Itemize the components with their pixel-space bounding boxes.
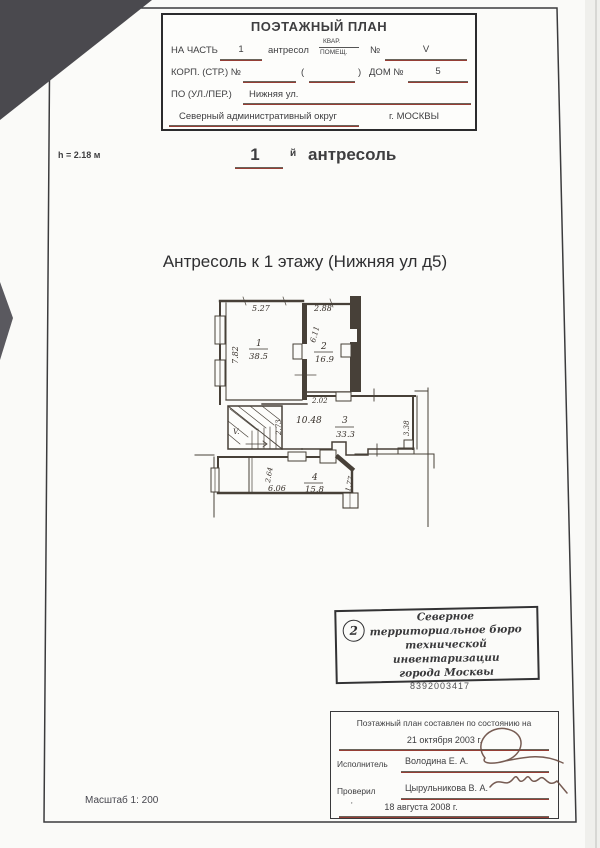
scan-edge-shadow <box>0 282 13 360</box>
na-chast-label: НА ЧАСТЬ <box>171 45 218 56</box>
room2-number: 2 <box>320 342 327 352</box>
city-value: г. МОСКВЫ <box>389 111 439 122</box>
plan-subtitle: Антресоль к 1 этажу (Нижняя ул д5) <box>90 252 520 272</box>
room1-area: 38.5 <box>249 352 268 362</box>
dim-passage: 2.02 <box>311 397 328 405</box>
dim-room1-depth: 7.82 <box>231 346 240 364</box>
form-title: ПОЭТАЖНЫЙ ПЛАН <box>163 19 475 34</box>
stamp-line3: технической инвентаризации <box>355 636 538 668</box>
blank-line <box>408 81 468 83</box>
paren-close: ) <box>358 67 361 78</box>
blank-line <box>385 59 467 61</box>
checker-label: Проверил <box>337 786 376 796</box>
stamp-line4: города Москвы <box>355 664 537 682</box>
floor-suffix: й <box>290 148 296 159</box>
na-chast-value: 1 <box>220 44 262 55</box>
fraction-bar <box>319 47 359 48</box>
dim-room1-width: 5.27 <box>252 304 271 313</box>
floor-plan-drawing: 5.27 7.82 1 38.5 2.88 6.11 2 16.9 2.02 1… <box>190 282 445 527</box>
num-label: № <box>370 45 380 56</box>
bti-stamp: 2 Северное территориальное бюро техничес… <box>334 606 540 684</box>
street-label: ПО (УЛ./ПЕР.) <box>171 89 232 100</box>
handwritten-signatures <box>455 713 580 808</box>
dim-corridor: 10.48 <box>296 416 322 426</box>
ceiling-height-note: h = 2.18 м <box>58 150 100 160</box>
district-value: Северный административный округ <box>179 111 337 122</box>
pomesh-label: ПОМЕЩ. <box>320 49 347 56</box>
kvar-label: КВАР. <box>323 38 340 45</box>
stamp-code: 8392003417 <box>390 681 490 691</box>
room4-area: 15.8 <box>305 485 325 495</box>
room3-area: 33.3 <box>336 430 355 440</box>
dim-room2-depth: 6.11 <box>308 325 321 343</box>
room2-area: 16.9 <box>315 355 335 365</box>
dom-value: 5 <box>408 66 468 77</box>
dim-stair-width: 2.73 <box>275 419 283 436</box>
executor-signature <box>481 728 563 763</box>
floor-number-underline <box>235 167 283 169</box>
stair-label: V. <box>233 427 240 436</box>
floor-number: 1 <box>238 145 272 165</box>
title-block-form: ПОЭТАЖНЫЙ ПЛАН НА ЧАСТЬ 1 антресол КВАР.… <box>161 13 477 131</box>
blank-line <box>169 125 359 127</box>
type-value: антресол <box>268 45 309 56</box>
blank-line <box>309 81 355 83</box>
paren-open: ( <box>301 67 304 78</box>
dim-room4-closet: 2.64 <box>264 467 275 485</box>
dom-label: ДОМ № <box>369 67 404 78</box>
room3-number: 3 <box>342 416 348 426</box>
street-value: Нижняя ул. <box>249 89 298 100</box>
blank-line <box>243 81 296 83</box>
num-value: V <box>385 44 467 55</box>
scanned-floor-plan-page: ПОЭТАЖНЫЙ ПЛАН НА ЧАСТЬ 1 антресол КВАР.… <box>0 0 600 848</box>
blank-line <box>243 103 471 105</box>
room4-number: 4 <box>311 473 318 483</box>
dim-room2-width: 2.88 <box>313 304 332 313</box>
paper-edge-strip <box>585 0 600 848</box>
korp-label: КОРП. (СТР.) № <box>171 67 241 78</box>
rule-line <box>339 816 549 818</box>
scale-label: Масштаб 1: 200 <box>85 795 158 806</box>
executor-label: Исполнитель <box>337 759 388 769</box>
room1-number: 1 <box>256 339 262 349</box>
dim-room4-right: 1.77 <box>344 475 355 492</box>
dim-room4-width: 6.06 <box>268 484 286 493</box>
dim-room3-depth: 3.38 <box>403 420 411 436</box>
blank-line <box>220 59 262 61</box>
checker-signature <box>490 777 567 793</box>
floor-word: антресоль <box>308 145 396 165</box>
